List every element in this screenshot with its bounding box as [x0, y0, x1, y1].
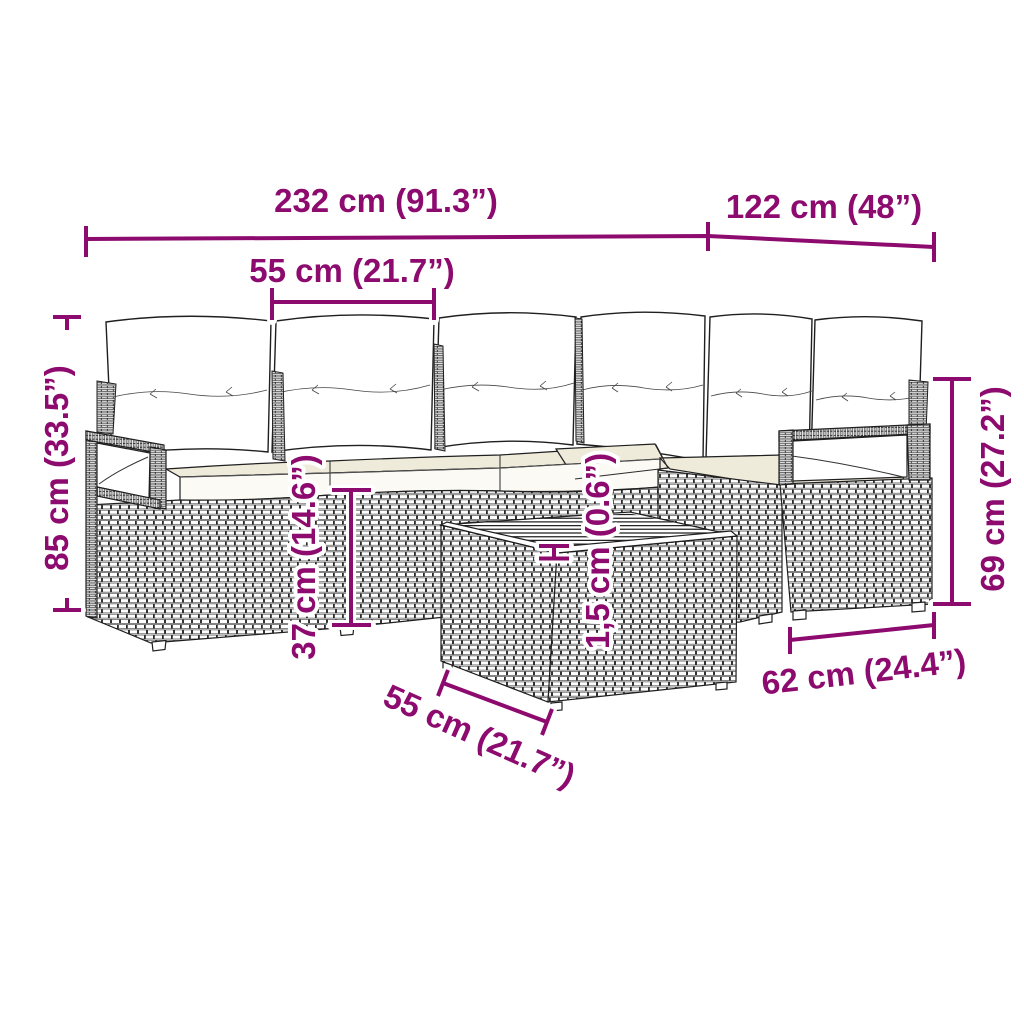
svg-text:85 cm (33.5”): 85 cm (33.5”): [38, 365, 75, 570]
svg-text:122 cm (48”): 122 cm (48”): [726, 188, 922, 225]
svg-text:232 cm (91.3”): 232 cm (91.3”): [274, 182, 498, 219]
svg-text:69 cm (27.2”): 69 cm (27.2”): [974, 386, 1011, 591]
svg-text:55 cm (21.7”): 55 cm (21.7”): [249, 252, 454, 289]
svg-text:1,5 cm (0.6”): 1,5 cm (0.6”): [579, 453, 616, 649]
svg-text:37 cm (14.6”): 37 cm (14.6”): [285, 454, 322, 659]
